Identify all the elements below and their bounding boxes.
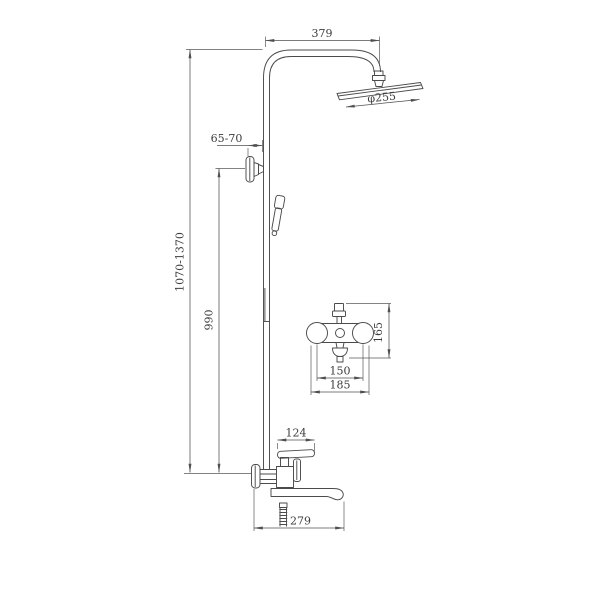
bottom-wall-flange — [252, 465, 261, 489]
dim-mixer-inlet-spacing: 150 — [317, 345, 363, 382]
dim-wall-offset-label: 65-70 — [211, 132, 243, 145]
pipe-joint — [264, 288, 270, 322]
threaded-shank — [279, 503, 287, 527]
cartridge-cap — [336, 329, 345, 338]
dim-handle-reach-label: 124 — [286, 427, 307, 440]
riser-pipe-and-arm — [264, 50, 381, 470]
dim-riser-height: 990 — [203, 169, 246, 473]
dim-riser-height-label: 990 — [203, 310, 216, 331]
dim-mixer-overall-width-label: 185 — [330, 379, 351, 392]
dim-mixer-height-label: 165 — [372, 322, 385, 343]
dim-spout-reach-label: 279 — [290, 515, 311, 528]
tub-spout — [271, 489, 343, 500]
dim-mixer-inlet-spacing-label: 150 — [330, 365, 351, 378]
dim-wall-offset: 65-70 — [211, 132, 263, 156]
dim-arm-reach-label: 379 — [312, 27, 333, 40]
wall-bracket — [246, 157, 264, 183]
shower-head-connector — [373, 71, 386, 87]
dim-arm-reach: 379 — [266, 27, 380, 66]
hand-shower — [269, 195, 285, 236]
connection-nut — [260, 470, 277, 484]
dim-handle-reach: 124 — [278, 427, 315, 452]
mixer-front-view — [307, 304, 374, 363]
dim-overall-height: 1070-1370 — [174, 50, 263, 473]
dim-overall-height-label: 1070-1370 — [174, 232, 187, 292]
dim-head-diameter-label: φ255 — [367, 90, 397, 106]
technical-drawing-page: φ255 379 65-70 1070-1370 990 — [0, 0, 600, 600]
shower-set-dimension-drawing: φ255 379 65-70 1070-1370 990 — [0, 0, 600, 600]
